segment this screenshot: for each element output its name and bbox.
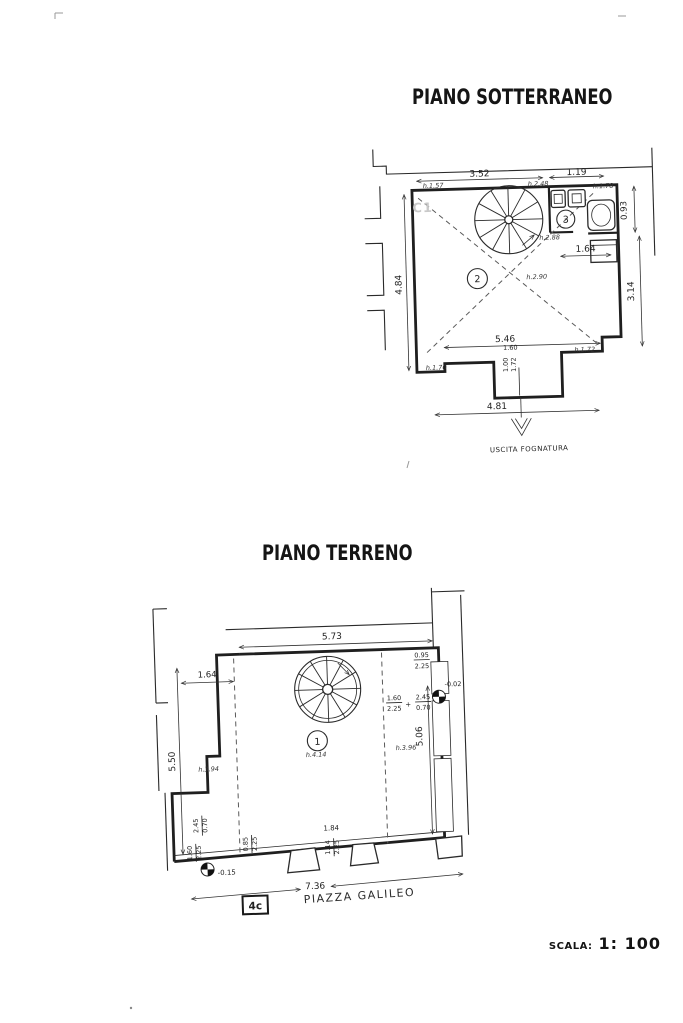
dim-door-b: 1.72 bbox=[510, 357, 518, 372]
room-3-number: 3 bbox=[563, 215, 569, 226]
dim-mid-door: 1.84 bbox=[323, 824, 339, 833]
height-label-stair-bottom: h.2.88 bbox=[539, 233, 560, 242]
height-label-left: h.3.94 bbox=[198, 765, 219, 774]
f4-den: 2.25 bbox=[333, 840, 341, 855]
room-2-number: 2 bbox=[474, 274, 480, 285]
dim-bottom-width: 4.81 bbox=[487, 402, 507, 413]
f1-den: 0.70 bbox=[201, 818, 209, 833]
dim-bath-width: 1.64 bbox=[575, 244, 596, 255]
win-frac-den: 2.25 bbox=[415, 662, 430, 670]
height-label-right: h.3.96 bbox=[396, 743, 417, 752]
dim-right-height: 5.06 bbox=[415, 726, 426, 747]
dim-bottom: 7.36 bbox=[305, 882, 326, 893]
dim-right-height: 3.14 bbox=[627, 281, 638, 302]
sink-icon bbox=[551, 190, 565, 207]
basement-spiral-stair-icon bbox=[474, 185, 544, 255]
floorplan-scan-page: PIANO SOTTERRANEO PIANO TERRENO SCALA: 1… bbox=[0, 0, 683, 1023]
f4-num: 1.14 bbox=[324, 840, 332, 855]
height-label-sw: h.1.70 bbox=[426, 364, 447, 373]
basement-plan: 3.52 1.19 h.1.57 C1 h.2.48 h.1.78 0.93 h… bbox=[363, 142, 660, 458]
f2-num: 1.60 bbox=[186, 846, 194, 861]
dim-left-height: 5.50 bbox=[168, 751, 179, 772]
street-piers bbox=[287, 836, 463, 873]
door-right-frac-num: 1.60 bbox=[387, 694, 402, 702]
ground-plan: 5.73 1.64 5.50 h.3.94 0.95 2.25 -0.02 1.… bbox=[153, 587, 475, 917]
door-right-frac-den: 2.25 bbox=[387, 704, 402, 712]
dim-top-right: 1.19 bbox=[566, 168, 587, 179]
room-1-number: 1 bbox=[314, 737, 320, 748]
level-street: -0.15 bbox=[218, 869, 236, 878]
opening-frac-num: 2.45 bbox=[416, 693, 431, 701]
dim-right-top: 0.93 bbox=[619, 201, 630, 220]
f1-num: 2.45 bbox=[192, 818, 200, 833]
benchmark-entry-icon bbox=[432, 690, 445, 703]
opening-frac-den: 0.70 bbox=[416, 703, 431, 711]
height-label-center: h.4.14 bbox=[306, 750, 327, 759]
height-label-center: h.2.90 bbox=[526, 273, 547, 282]
plan-drawing: 3.52 1.19 h.1.57 C1 h.2.48 h.1.78 0.93 h… bbox=[0, 0, 683, 1023]
level-entry: -0.02 bbox=[444, 680, 461, 689]
height-label-ne: h.1.78 bbox=[593, 182, 614, 191]
plus-sign: + bbox=[405, 701, 411, 709]
f3-den: 2.25 bbox=[251, 837, 259, 852]
sewer-exit-arrow-icon bbox=[511, 397, 532, 436]
height-label-stair-top: h.2.48 bbox=[528, 180, 549, 189]
height-label-nw: h.1.57 bbox=[423, 182, 445, 191]
dim-left-height: 4.84 bbox=[394, 274, 405, 295]
dim-upper-left: 1.64 bbox=[198, 670, 217, 681]
stamp-c1: C1 bbox=[412, 201, 433, 217]
bidet-icon bbox=[568, 190, 585, 207]
benchmark-street-icon bbox=[201, 863, 214, 876]
ground-dimension-lines bbox=[176, 640, 463, 899]
dim-door-width: 1.60 bbox=[503, 344, 518, 352]
block-ref-label: 4c bbox=[248, 900, 262, 912]
f2-den: 2.25 bbox=[195, 845, 203, 860]
sewer-exit-label: USCITA FOGNATURA bbox=[490, 444, 569, 454]
scan-artifacts bbox=[55, 13, 626, 1009]
height-label-se: h.1.72 bbox=[574, 345, 595, 354]
dim-top-main: 3.52 bbox=[469, 169, 489, 180]
f3-num: 0.85 bbox=[242, 837, 250, 852]
ground-spiral-stair-icon bbox=[294, 655, 362, 723]
dim-top: 5.73 bbox=[322, 632, 342, 643]
win-frac-num: 0.95 bbox=[414, 651, 429, 659]
